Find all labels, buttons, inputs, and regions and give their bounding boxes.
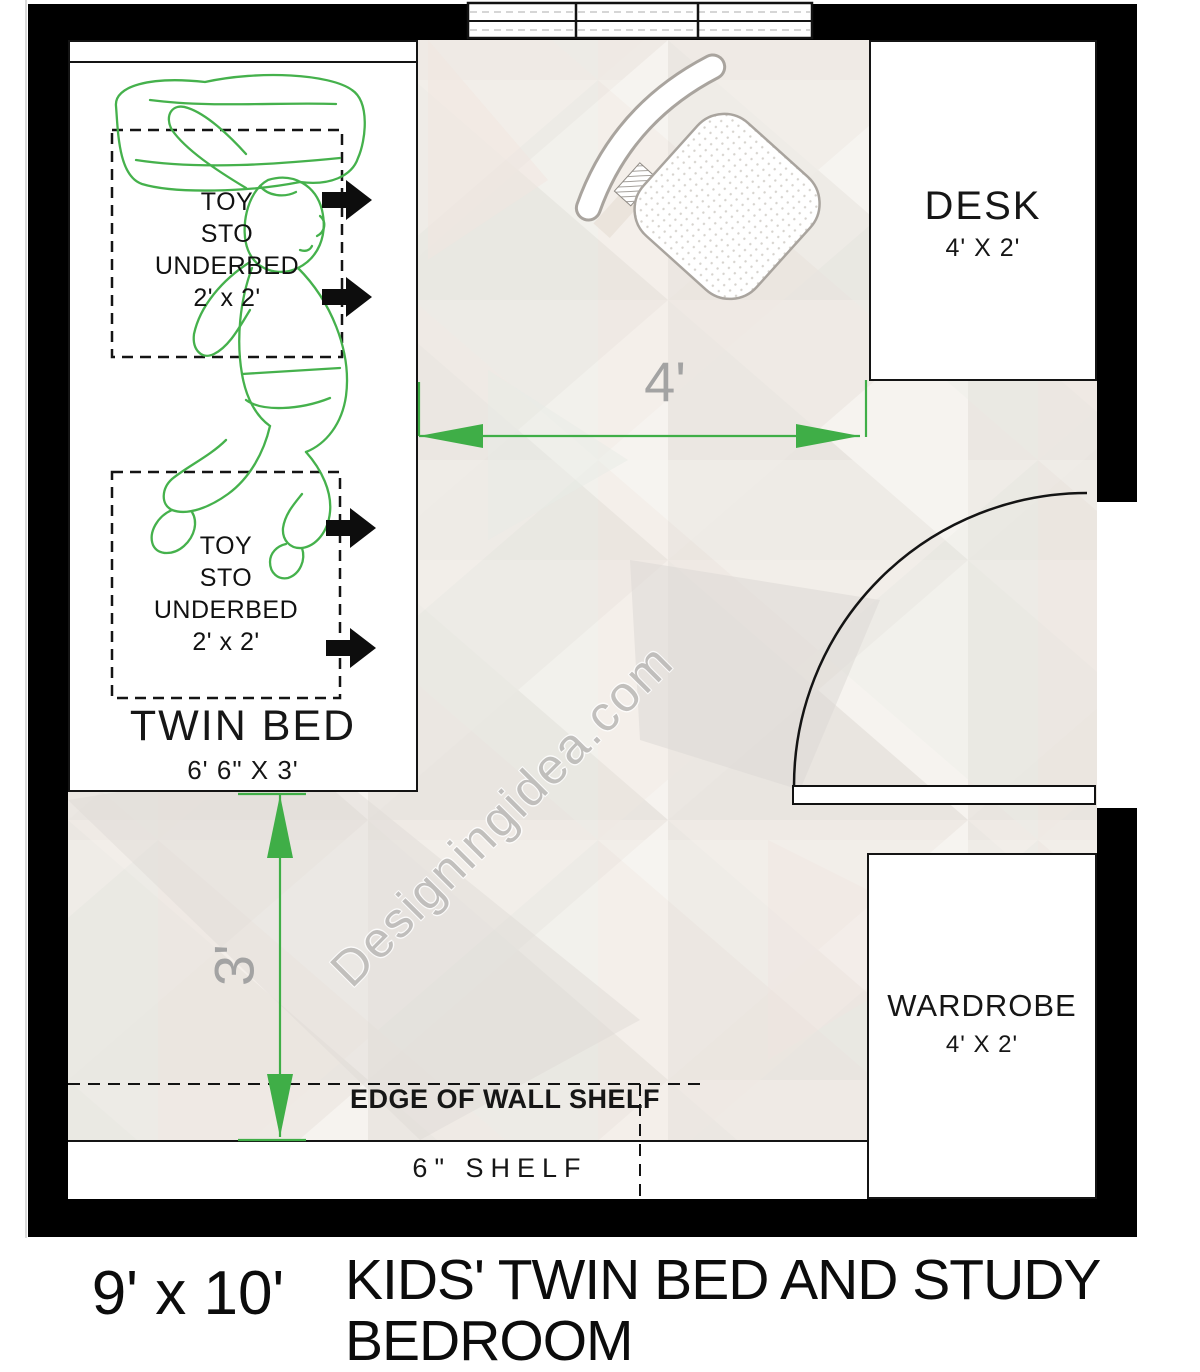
caption-title-line2: BEDROOM [345, 1311, 1100, 1372]
wardrobe-size: 4' X 2' [867, 1031, 1097, 1059]
door-swing [793, 493, 1095, 804]
toy-label-line: STO [112, 562, 340, 594]
caption-title: KIDS' TWIN BED AND STUDY BEDROOM [345, 1250, 1100, 1372]
dimension-3ft-label: 3' [190, 920, 280, 1010]
toy-storage-label-2: TOY STO UNDERBED 2' x 2' [112, 530, 340, 658]
wardrobe-label-block: WARDROBE 4' X 2' [867, 988, 1097, 1058]
wall-bottom [28, 1199, 1137, 1237]
twin-bed [68, 40, 418, 792]
toy-label-line: TOY [112, 186, 342, 218]
door-leaf [793, 786, 1095, 804]
desk-label: DESK [869, 183, 1097, 229]
toy-label-line: 2' x 2' [112, 282, 342, 314]
dimension-3ft-text: 3' [203, 944, 267, 986]
toy-label-line: STO [112, 218, 342, 250]
wall-left [28, 4, 68, 1237]
desk-size: 4' X 2' [869, 234, 1097, 263]
floor-plan-page: Designingidea.com [0, 0, 1200, 1372]
page-margin-line [25, 0, 27, 1238]
dimension-4ft-label: 4' [615, 350, 715, 414]
toy-label-line: 2' x 2' [112, 626, 340, 658]
toy-label-line: UNDERBED [112, 250, 342, 282]
shelf-edge-label: EDGE OF WALL SHELF [300, 1084, 710, 1115]
desk-label-block: DESK 4' X 2' [869, 183, 1097, 263]
toy-storage-label-1: TOY STO UNDERBED 2' x 2' [112, 186, 342, 314]
twin-bed-size: 6' 6" X 3' [70, 756, 416, 786]
wardrobe-label: WARDROBE [867, 988, 1097, 1024]
desk-chair [569, 55, 847, 333]
caption-title-line1: KIDS' TWIN BED AND STUDY [345, 1250, 1100, 1311]
wall-right-lower [1097, 808, 1137, 1237]
caption-room-size: 9' x 10' [70, 1258, 306, 1329]
toy-label-line: UNDERBED [112, 594, 340, 626]
shelf-label: 6" SHELF [280, 1153, 720, 1184]
wall-right-upper [1097, 4, 1137, 502]
toy-label-line: TOY [112, 530, 340, 562]
twin-bed-label: TWIN BED [70, 702, 416, 751]
wall-top [28, 4, 1137, 40]
